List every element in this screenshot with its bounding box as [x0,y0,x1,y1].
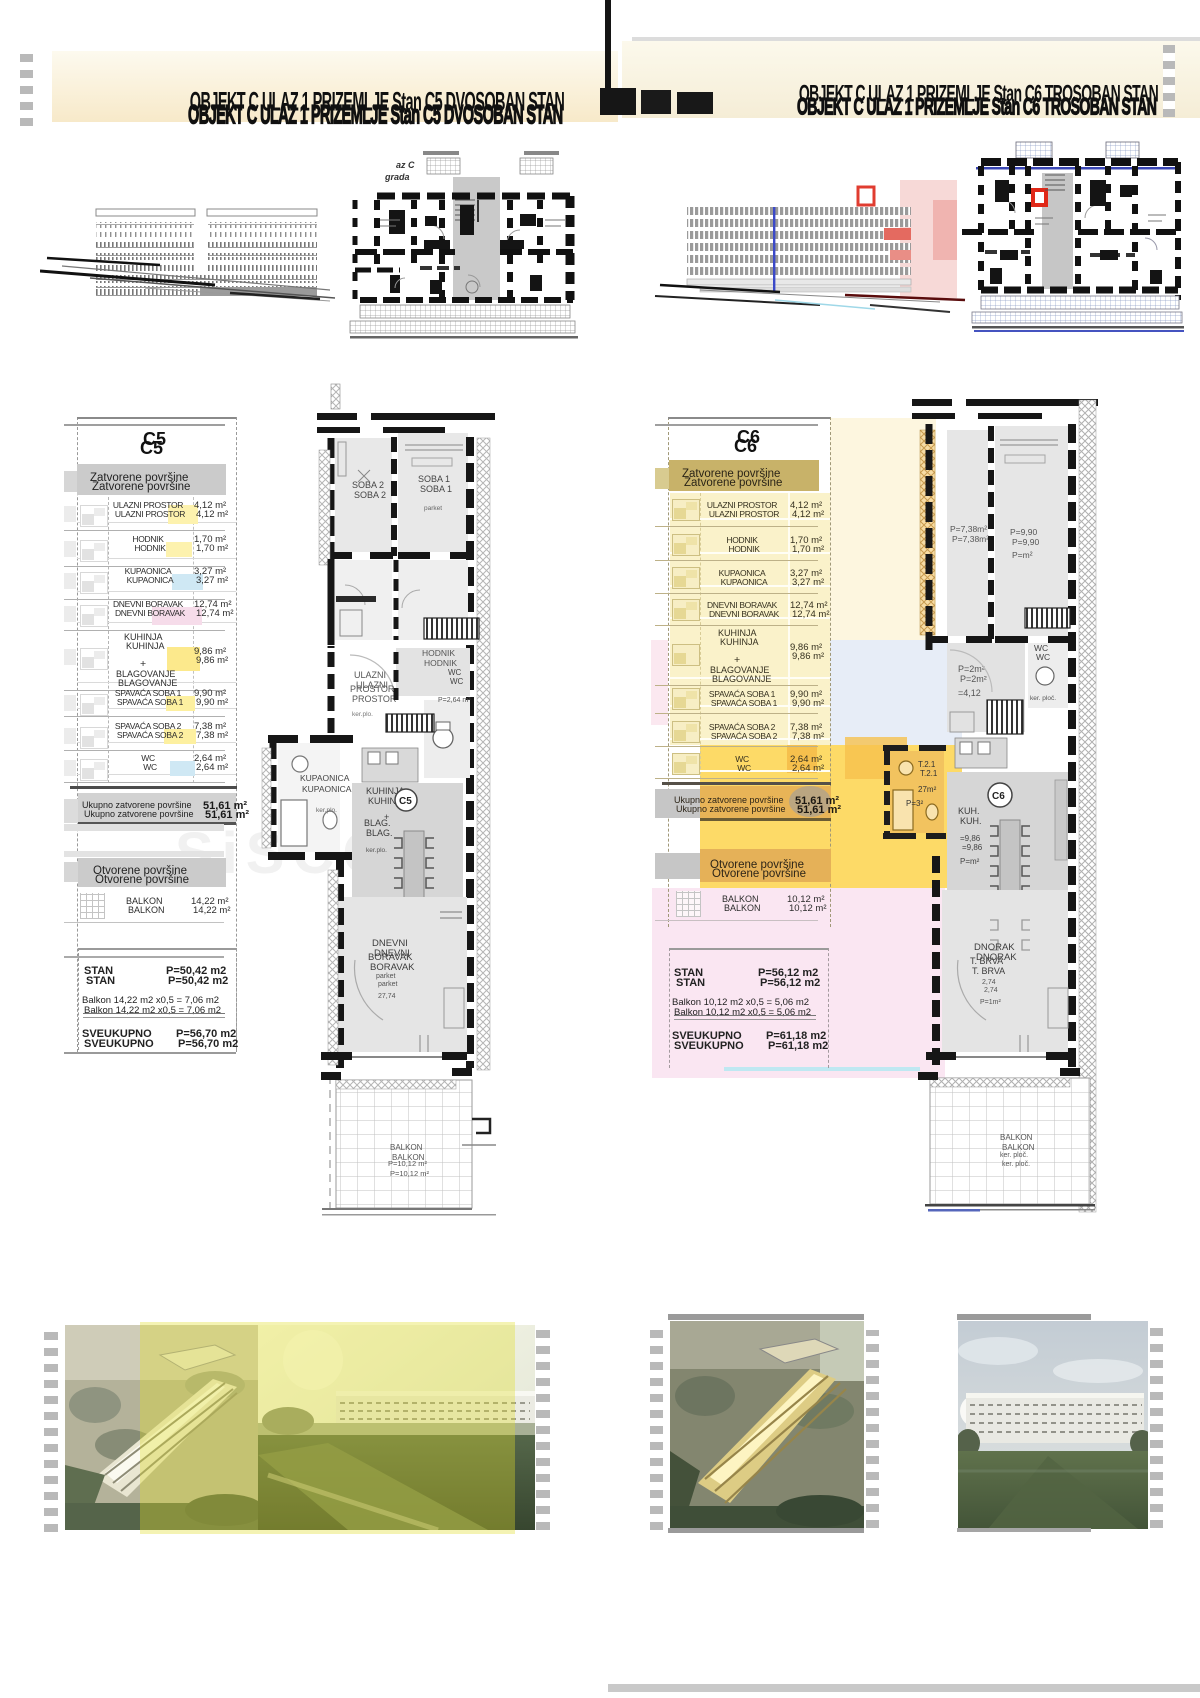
svg-text:C5: C5 [399,796,412,807]
svg-text:P=3²: P=3² [906,799,923,808]
svg-text:P=1m²: P=1m² [980,999,1001,1006]
svg-text:parket: parket [424,505,442,512]
svg-text:T. BRVA: T. BRVA [972,966,1005,976]
svg-text:BALKON: BALKON [392,1153,425,1162]
svg-text:ker.plo.: ker.plo. [352,711,373,718]
svg-text:ker. ploč.: ker. ploč. [1002,1161,1030,1168]
svg-text:SOBA 1: SOBA 1 [420,484,452,494]
svg-text:P=m²: P=m² [1012,550,1033,560]
svg-text:ker.plo.: ker.plo. [366,847,387,854]
svg-text:BALKON: BALKON [1002,1143,1035,1152]
svg-text:P=10,12 m²: P=10,12 m² [390,1169,429,1178]
svg-text:P=2,64 m²: P=2,64 m² [438,697,471,704]
svg-text:ker.plo.: ker.plo. [316,807,337,814]
svg-text:parket: parket [378,981,398,988]
svg-text:KUPAONICA: KUPAONICA [302,784,352,794]
svg-text:BORAVAK: BORAVAK [370,962,415,973]
svg-text:+: + [384,812,389,822]
svg-text:P=9,90: P=9,90 [1012,537,1039,547]
svg-text:=4,12: =4,12 [958,688,981,698]
svg-text:27,74: 27,74 [378,993,396,1000]
svg-text:grada: grada [384,172,410,182]
svg-text:DNEVNI: DNEVNI [374,948,410,959]
svg-text:P=2m²: P=2m² [960,674,987,684]
svg-text:PROSTOR: PROSTOR [352,694,397,704]
svg-text:T.2.1: T.2.1 [920,769,938,778]
svg-text:ULAZNI: ULAZNI [356,680,388,690]
svg-text:WC: WC [1036,652,1050,662]
svg-text:=9,86: =9,86 [962,843,983,852]
svg-text:BLAG.: BLAG. [366,828,393,838]
svg-text:HODNIK: HODNIK [424,658,457,668]
svg-text:27m²: 27m² [918,785,937,794]
svg-text:KUH.: KUH. [960,816,982,826]
svg-text:2,74: 2,74 [984,987,998,994]
svg-text:P=7,38m²: P=7,38m² [952,534,989,544]
svg-text:C6: C6 [992,791,1005,802]
svg-text:P=m²: P=m² [960,857,980,866]
svg-text:ker. ploč.: ker. ploč. [1030,695,1056,702]
svg-text:SOBA 2: SOBA 2 [354,490,386,500]
svg-text:WC: WC [450,677,464,686]
svg-text:az C: az C [396,160,415,170]
svg-text:DNORAK: DNORAK [976,952,1017,963]
